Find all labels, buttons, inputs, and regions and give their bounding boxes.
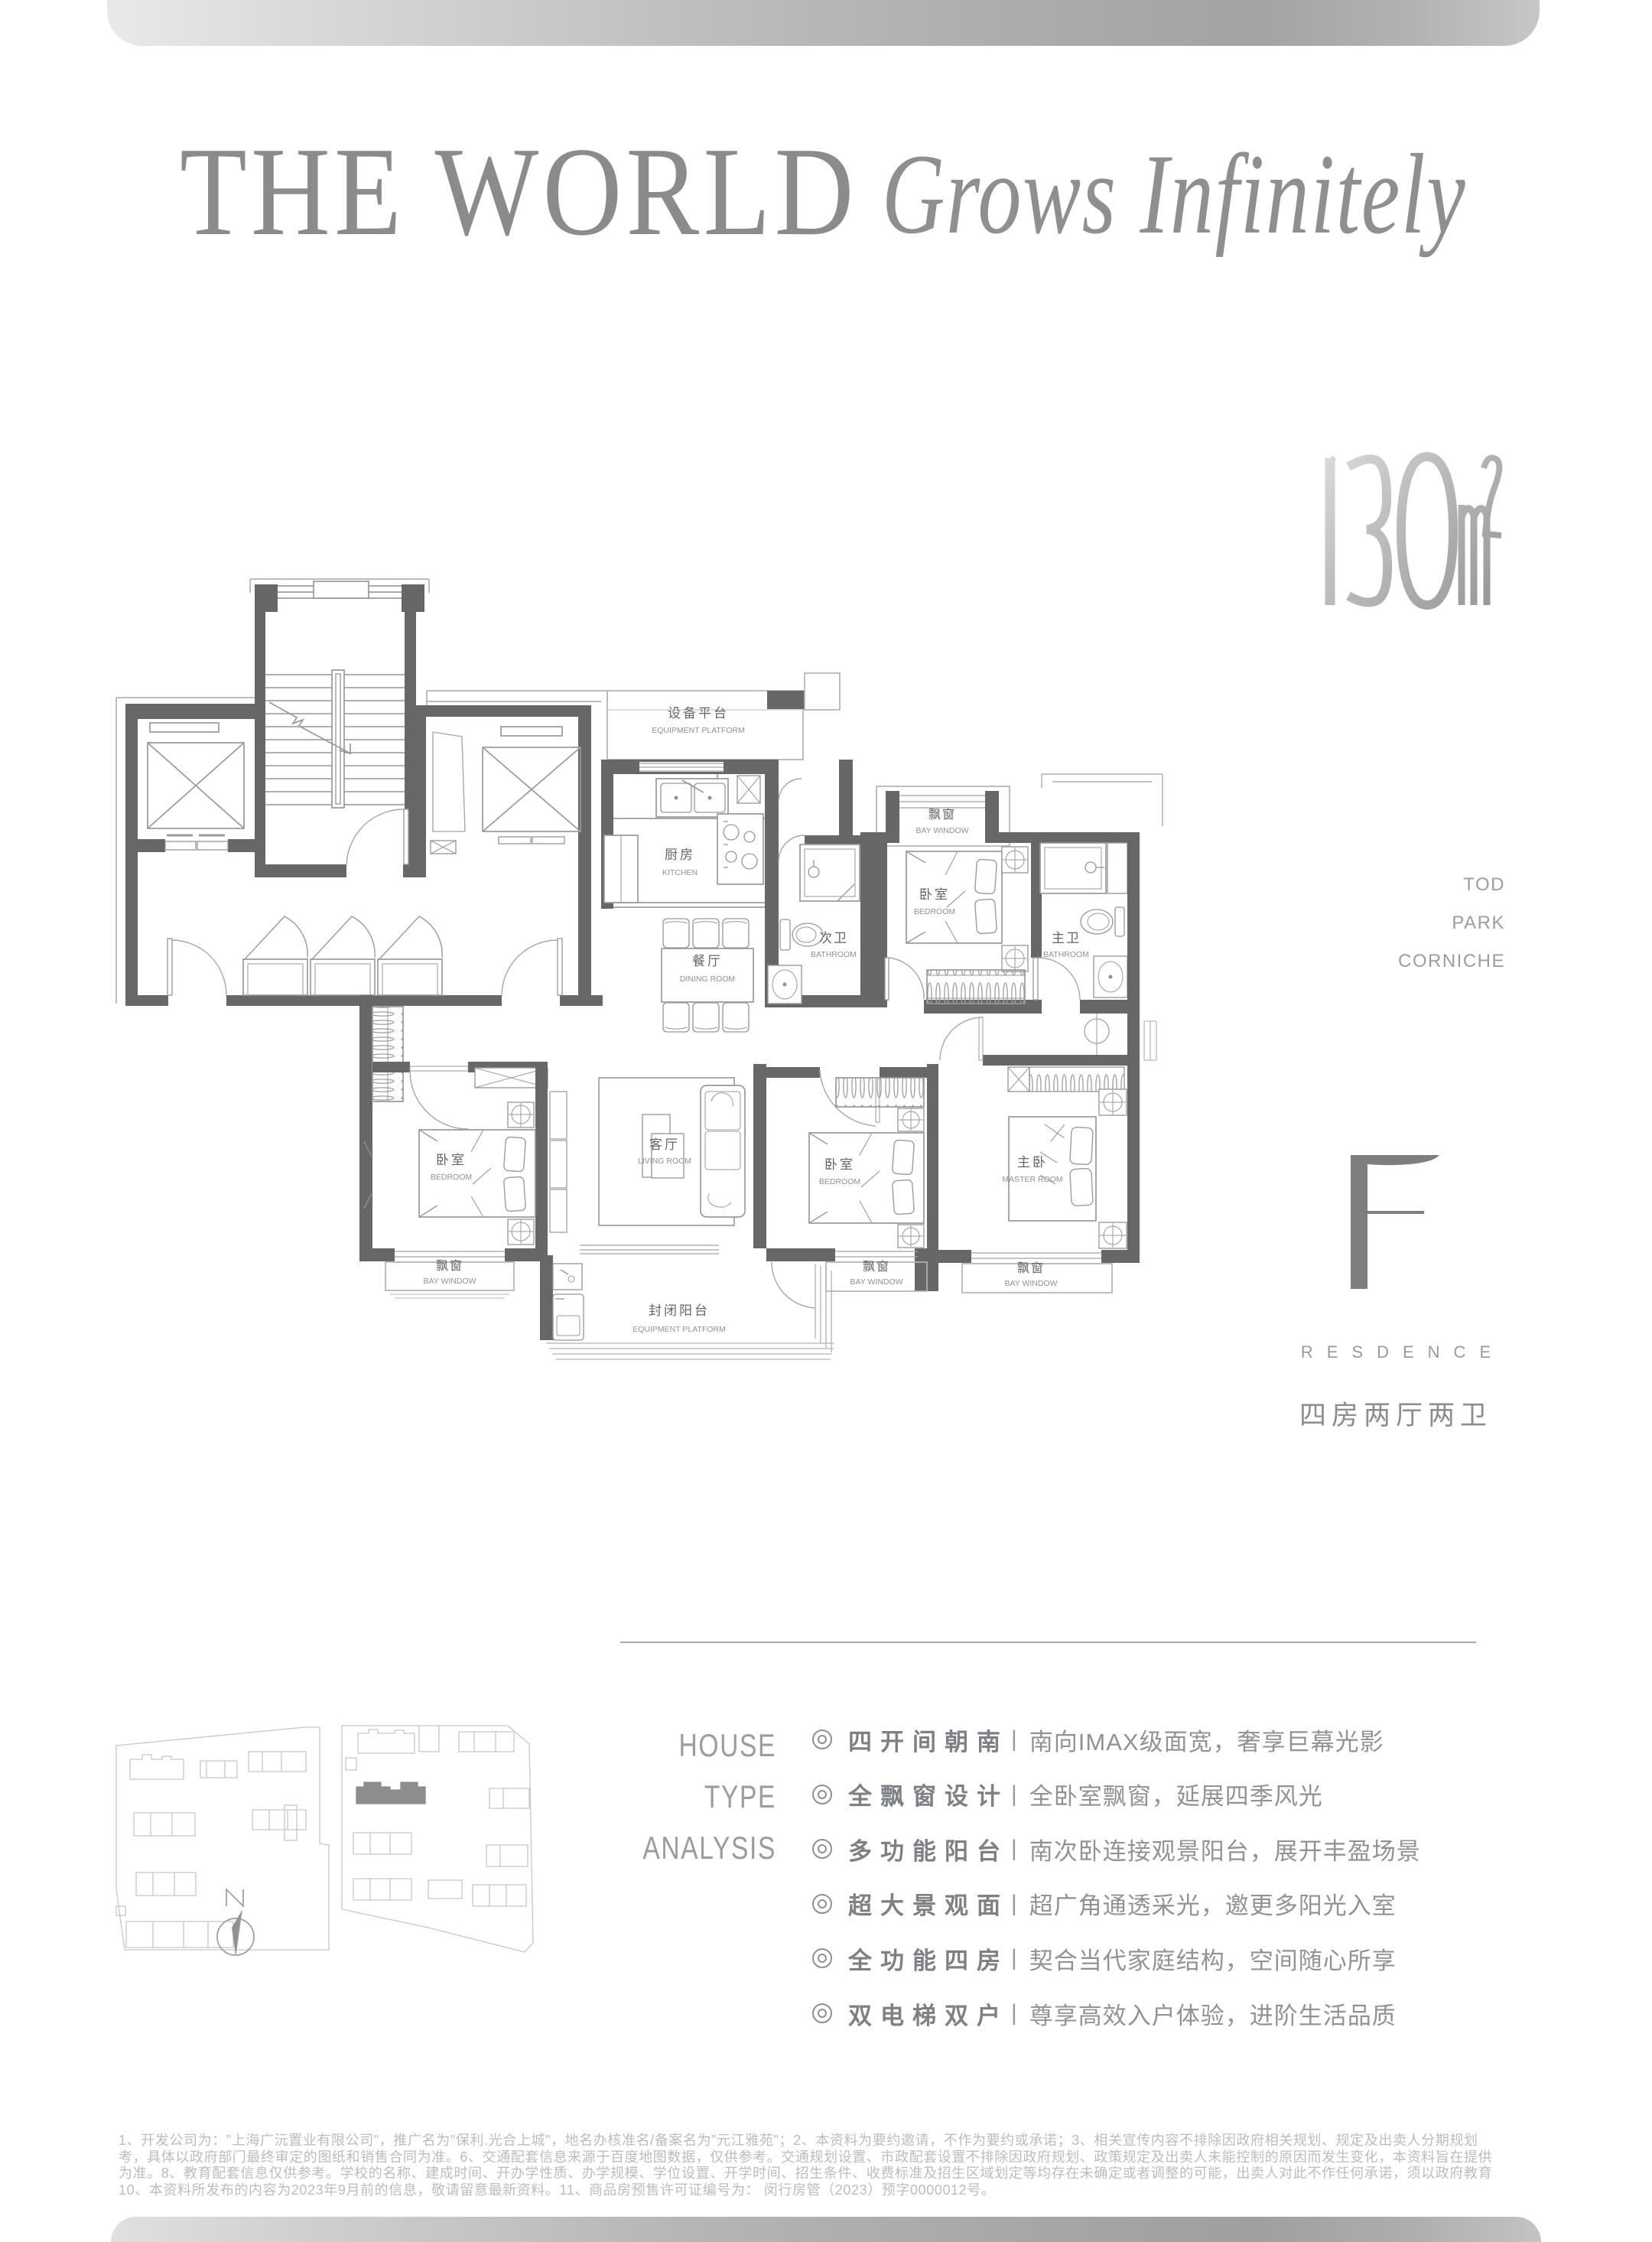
svg-text:DINING ROOM: DINING ROOM <box>680 975 735 984</box>
svg-text:卧室: 卧室 <box>919 887 950 902</box>
svg-text:餐厅: 餐厅 <box>692 954 723 968</box>
svg-text:BEDROOM: BEDROOM <box>431 1173 472 1182</box>
svg-text:主卫: 主卫 <box>1052 931 1081 945</box>
svg-text:BATHROOM: BATHROOM <box>1043 950 1089 959</box>
svg-text:卧室: 卧室 <box>824 1157 855 1172</box>
svg-text:BEDROOM: BEDROOM <box>914 907 955 916</box>
svg-text:LIVING ROOM: LIVING ROOM <box>638 1157 691 1166</box>
svg-text:BAY WINDOW: BAY WINDOW <box>850 1277 902 1287</box>
svg-text:KITCHEN: KITCHEN <box>662 868 698 877</box>
svg-text:EQUIPMENT PLATFORM: EQUIPMENT PLATFORM <box>652 726 745 735</box>
svg-text:客厅: 客厅 <box>649 1137 680 1152</box>
svg-text:EQUIPMENT PLATFORM: EQUIPMENT PLATFORM <box>633 1325 726 1334</box>
svg-text:飘窗: 飘窗 <box>436 1259 463 1273</box>
svg-text:飘窗: 飘窗 <box>863 1260 890 1274</box>
svg-text:BAY WINDOW: BAY WINDOW <box>423 1277 476 1286</box>
svg-text:主卧: 主卧 <box>1017 1155 1048 1170</box>
svg-text:封闭阳台: 封闭阳台 <box>649 1303 710 1318</box>
svg-text:BAY WINDOW: BAY WINDOW <box>1004 1279 1057 1288</box>
svg-text:设备平台: 设备平台 <box>668 706 729 721</box>
svg-text:BAY WINDOW: BAY WINDOW <box>915 826 968 835</box>
svg-text:飘窗: 飘窗 <box>1017 1261 1045 1275</box>
svg-text:厨房: 厨房 <box>665 848 695 862</box>
svg-text:BEDROOM: BEDROOM <box>819 1177 860 1186</box>
svg-text:MASTER ROOM: MASTER ROOM <box>1002 1175 1062 1184</box>
svg-text:卧室: 卧室 <box>436 1153 467 1167</box>
svg-text:飘窗: 飘窗 <box>928 808 956 822</box>
svg-text:次卫: 次卫 <box>819 931 848 945</box>
svg-text:BATHROOM: BATHROOM <box>811 950 857 959</box>
